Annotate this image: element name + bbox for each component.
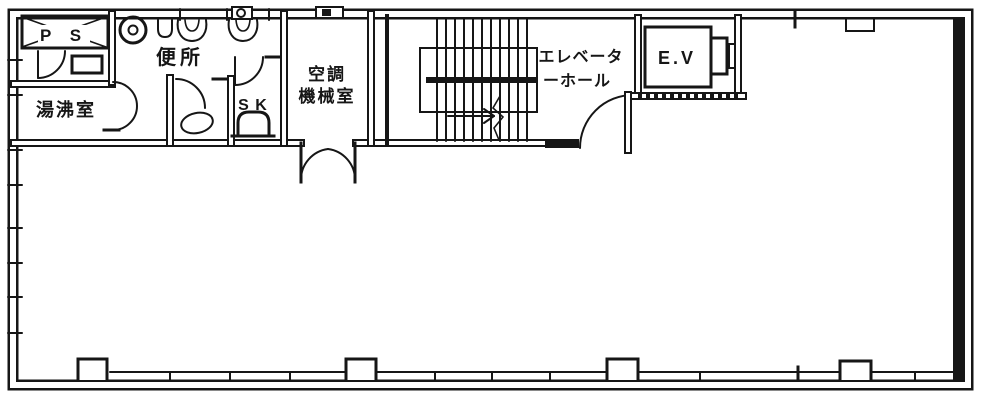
double-door bbox=[301, 143, 355, 182]
door-swing-arc bbox=[113, 82, 137, 130]
column bbox=[840, 361, 871, 380]
elevator-hall-label-line1: エレベータ bbox=[538, 48, 623, 66]
wash-basin-icon bbox=[120, 17, 146, 43]
door-threshold bbox=[545, 139, 579, 148]
floor-plan-page: P S 湯沸室 便所 bbox=[0, 0, 989, 400]
elevator-hall-label-line2: ーホール bbox=[543, 72, 611, 90]
stair-center-rail bbox=[426, 77, 536, 83]
urinal-icon bbox=[229, 20, 258, 41]
ac-room-label-line2: 機械室 bbox=[299, 86, 356, 106]
floor-plan-svg: P S 湯沸室 便所 bbox=[0, 0, 989, 400]
column bbox=[607, 359, 638, 380]
elevator-shaft: E.V bbox=[634, 18, 743, 96]
toilet-bowl-icon bbox=[179, 110, 214, 136]
ac-room-label-line1: 空調 bbox=[308, 64, 346, 84]
outer-walls bbox=[8, 9, 968, 385]
hot-water-room-label: 湯沸室 bbox=[36, 99, 96, 120]
door-swing-arc bbox=[38, 51, 65, 78]
elevator-door-gear bbox=[711, 38, 727, 74]
sink-fixture bbox=[72, 56, 102, 73]
toilet-label: 便所 bbox=[156, 46, 204, 69]
stair-direction-arrow bbox=[448, 96, 503, 140]
door-swing-arc bbox=[176, 79, 205, 108]
elevator-label: E.V bbox=[658, 48, 696, 68]
urinal-icon bbox=[178, 20, 207, 41]
bottom-window-wall bbox=[78, 359, 953, 380]
door-swing-arc bbox=[328, 149, 355, 180]
room-ac-machinery: 空調 機械室 bbox=[232, 7, 371, 182]
door-swing-arc bbox=[301, 149, 328, 180]
column bbox=[346, 359, 376, 380]
wall-fixture-icon bbox=[158, 20, 172, 37]
elevator-hall: エレベータ ーホール bbox=[538, 48, 633, 150]
slop-sink-icon bbox=[232, 112, 274, 136]
room-ps: P S bbox=[14, 16, 112, 84]
column bbox=[78, 359, 107, 380]
room-sk: S K bbox=[232, 57, 284, 136]
staircase bbox=[387, 16, 537, 143]
door-swing-arc bbox=[235, 57, 263, 85]
ps-label: P S bbox=[40, 26, 88, 45]
